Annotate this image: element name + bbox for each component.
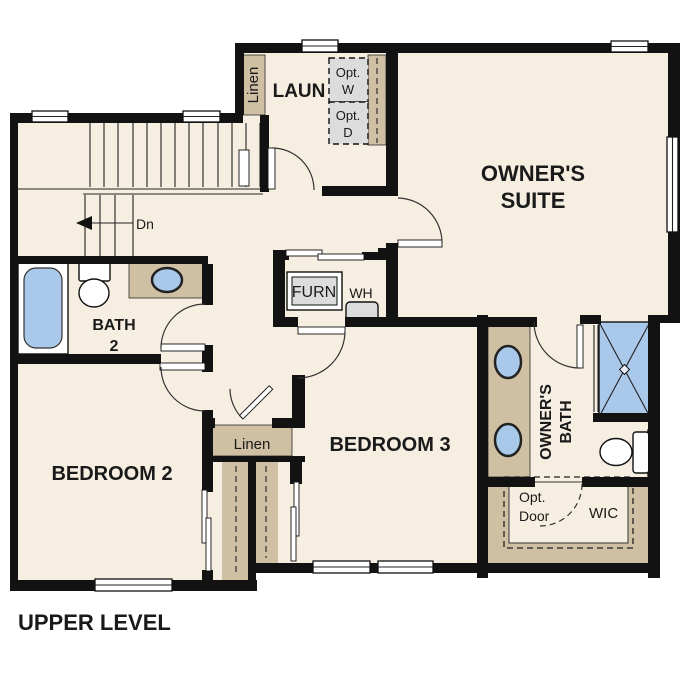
window-icon [611, 41, 648, 52]
window-icon [313, 561, 370, 573]
label-opt-dryer-1: Opt. [336, 108, 361, 123]
room-label-wic: WIC [589, 505, 618, 522]
window-icon [302, 40, 338, 52]
owners-sink2-icon [495, 424, 521, 456]
room-label-bath2-1: BATH [92, 317, 135, 334]
bath2-toilet-icon [79, 261, 110, 307]
label-water-heater: WH [349, 285, 372, 301]
label-linen-hall: Linen [234, 436, 271, 453]
page-title: UPPER LEVEL [18, 610, 171, 635]
room-label-bath2-2: 2 [110, 338, 119, 355]
window-icon [667, 137, 678, 232]
shower-icon [594, 322, 650, 417]
room-label-owners-suite-2: SUITE [501, 188, 566, 213]
window-icon [378, 561, 433, 573]
label-stairs-down: Dn [136, 216, 154, 232]
room-label-bedroom2: BEDROOM 2 [51, 463, 172, 485]
label-opt-dryer-2: D [343, 125, 352, 140]
stair-rail [239, 150, 249, 186]
window-icon [95, 579, 172, 591]
label-opt-door-1: Opt. [519, 489, 545, 505]
window-icon [32, 111, 68, 122]
bathtub-icon [24, 268, 62, 348]
label-opt-washer-1: Opt. [336, 65, 361, 80]
label-opt-washer-2: W [342, 82, 355, 97]
label-opt-door-2: Door [519, 508, 550, 524]
room-label-owners-bath-1: OWNER'S [538, 384, 555, 460]
label-linen-laundry: Linen [245, 67, 262, 104]
room-label-bedroom3: BEDROOM 3 [329, 434, 450, 456]
bedroom2-closet [222, 462, 248, 580]
window-icon [183, 111, 220, 122]
floor-plan-page: OWNER'S SUITE BEDROOM 2 BEDROOM 3 LAUN B… [0, 0, 687, 687]
bath2-sink-icon [152, 268, 182, 292]
owners-sink1-icon [495, 346, 521, 378]
room-label-laundry: LAUN [273, 81, 326, 102]
floor-plan-drawing: OWNER'S SUITE BEDROOM 2 BEDROOM 3 LAUN B… [0, 0, 687, 687]
label-furnace: FURN [292, 284, 336, 301]
room-label-owners-bath-2: BATH [558, 400, 575, 443]
room-label-owners-suite-1: OWNER'S [481, 161, 585, 186]
